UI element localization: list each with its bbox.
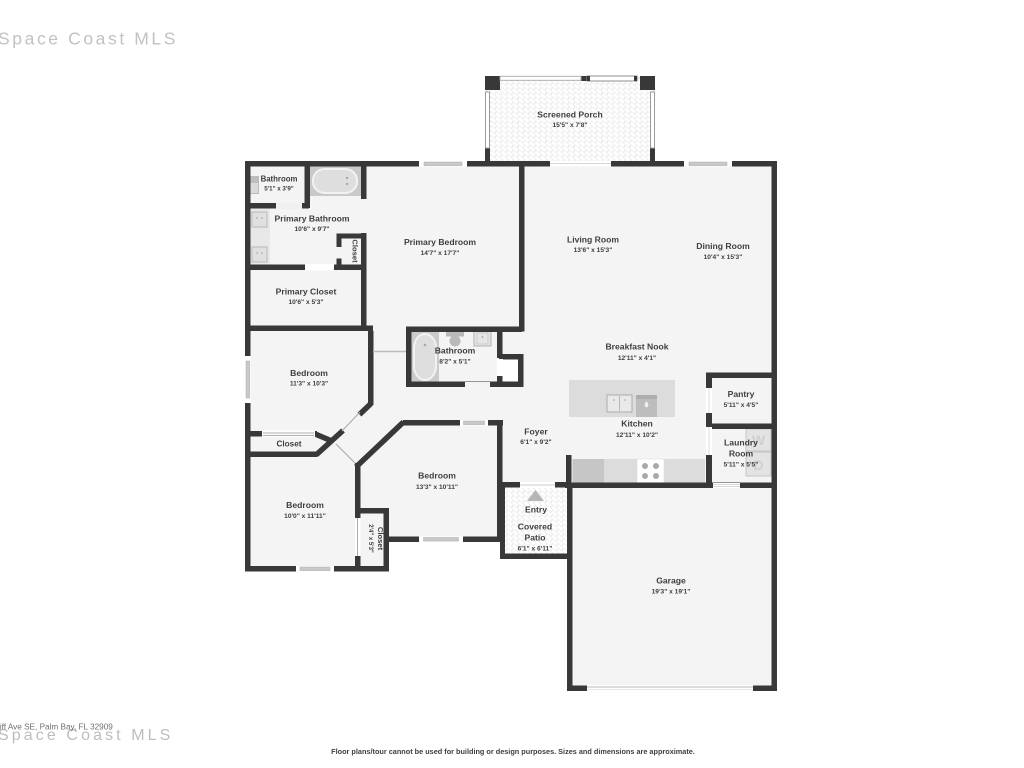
svg-text:Bedroom: Bedroom bbox=[286, 500, 324, 510]
svg-text:Pantry: Pantry bbox=[728, 389, 755, 399]
svg-text:10'6" x 5'3": 10'6" x 5'3" bbox=[288, 299, 323, 306]
svg-text:Bathroom: Bathroom bbox=[435, 346, 476, 356]
svg-text:Space Coast MLS: Space Coast MLS bbox=[0, 29, 178, 49]
svg-text:5'11" x 5'5": 5'11" x 5'5" bbox=[724, 462, 759, 469]
svg-text:5'11" x 4'5": 5'11" x 4'5" bbox=[724, 402, 759, 409]
svg-text:10'0" x 11'11": 10'0" x 11'11" bbox=[284, 513, 326, 520]
svg-text:Breakfast Nook: Breakfast Nook bbox=[605, 342, 668, 352]
svg-text:Kitchen: Kitchen bbox=[621, 419, 653, 429]
svg-text:2'4" x 5'3": 2'4" x 5'3" bbox=[367, 524, 373, 553]
svg-text:Garage: Garage bbox=[656, 576, 686, 586]
svg-text:15'5" x 7'8": 15'5" x 7'8" bbox=[552, 122, 587, 129]
svg-text:11'3" x 10'3": 11'3" x 10'3" bbox=[290, 381, 328, 388]
svg-text:Closet: Closet bbox=[351, 239, 360, 263]
svg-text:Bedroom: Bedroom bbox=[418, 471, 456, 481]
svg-text:13'3" x 10'11": 13'3" x 10'11" bbox=[416, 484, 458, 491]
svg-text:Dining Room: Dining Room bbox=[696, 241, 750, 251]
svg-text:Bedroom: Bedroom bbox=[290, 368, 328, 378]
svg-text:12'11" x 4'1": 12'11" x 4'1" bbox=[618, 355, 656, 362]
svg-text:13'6" x 15'3": 13'6" x 15'3" bbox=[574, 247, 613, 254]
svg-text:Floor plans/tour cannot be use: Floor plans/tour cannot be used for buil… bbox=[331, 747, 695, 756]
svg-text:10'4" x 15'3": 10'4" x 15'3" bbox=[704, 254, 743, 261]
svg-text:12'11" x 10'2": 12'11" x 10'2" bbox=[616, 432, 658, 439]
svg-text:liff Ave SE, Palm Bay, FL 3290: liff Ave SE, Palm Bay, FL 32909 bbox=[0, 723, 113, 732]
svg-text:10'6" x 9'7": 10'6" x 9'7" bbox=[294, 226, 329, 233]
svg-text:Closet: Closet bbox=[376, 527, 385, 551]
svg-text:19'3" x 19'1": 19'3" x 19'1" bbox=[652, 589, 691, 596]
svg-text:Primary Bedroom: Primary Bedroom bbox=[404, 237, 476, 247]
svg-text:5'1" x 3'9": 5'1" x 3'9" bbox=[264, 186, 294, 193]
svg-text:Patio: Patio bbox=[524, 533, 545, 543]
svg-text:Entry: Entry bbox=[525, 505, 547, 515]
svg-text:Room: Room bbox=[729, 449, 754, 459]
svg-text:Screened Porch: Screened Porch bbox=[537, 110, 602, 120]
svg-text:Living Room: Living Room bbox=[567, 235, 619, 245]
svg-text:14'7" x 17'7": 14'7" x 17'7" bbox=[421, 250, 460, 257]
svg-text:Laundry: Laundry bbox=[724, 438, 758, 448]
svg-text:Foyer: Foyer bbox=[524, 427, 548, 437]
svg-text:Primary Bathroom: Primary Bathroom bbox=[275, 214, 350, 224]
svg-text:Primary Closet: Primary Closet bbox=[276, 287, 337, 297]
svg-text:8'2" x 5'1": 8'2" x 5'1" bbox=[439, 359, 470, 366]
svg-text:6'1" x 9'2": 6'1" x 9'2" bbox=[520, 439, 551, 446]
svg-text:6'1" x 6'11": 6'1" x 6'11" bbox=[518, 546, 553, 553]
svg-text:Covered: Covered bbox=[518, 522, 552, 532]
svg-text:Bathroom: Bathroom bbox=[261, 175, 298, 184]
svg-text:Closet: Closet bbox=[276, 440, 301, 449]
